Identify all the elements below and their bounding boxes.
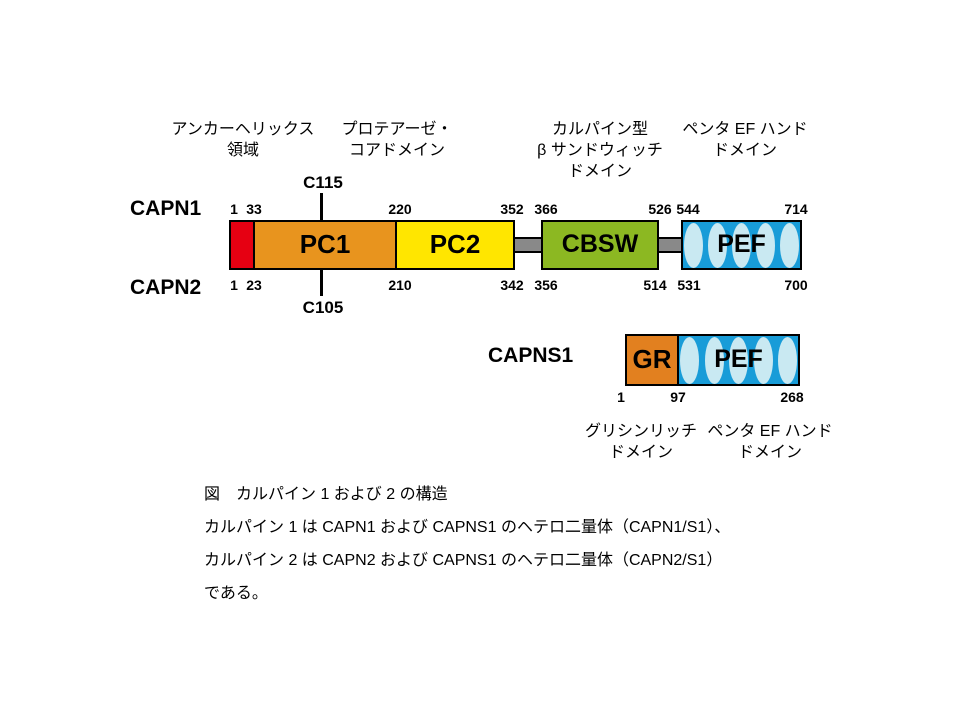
capn2-tick: 700: [784, 277, 807, 293]
annotation-line: ドメイン: [707, 442, 832, 463]
linker-cbsw-pef: [657, 237, 683, 253]
domain-anchor-helix: [229, 220, 255, 270]
capn1-tick: 714: [784, 201, 807, 217]
caption-line: 図 カルパイン 1 および 2 の構造: [204, 478, 730, 511]
caption-line: カルパイン 2 は CAPN2 および CAPNS1 のヘテロ二量体（CAPN2…: [204, 544, 730, 577]
domain-gr-label: GR: [633, 344, 672, 375]
active-site-c115-tick: [320, 193, 323, 220]
capn2-tick: 1: [230, 277, 238, 293]
caption-line: カルパイン 1 は CAPN1 および CAPNS1 のヘテロ二量体（CAPN1…: [204, 511, 730, 544]
domain-cbsw-label: CBSW: [562, 230, 638, 259]
annotation-line: ペンタ EF ハンド: [707, 421, 832, 442]
annotation-line: ペンタ EF ハンド: [682, 119, 807, 140]
capns1-tick: 268: [780, 389, 803, 405]
capns1-name: CAPNS1: [488, 344, 573, 368]
capn1-name: CAPN1: [130, 197, 201, 221]
capn2-tick: 531: [677, 277, 700, 293]
domain-pc1: PC1: [253, 220, 397, 270]
linker-pc2-cbsw: [513, 237, 543, 253]
annotation-glycine-rich: グリシンリッチ ドメイン: [585, 421, 697, 463]
capn1-tick: 526: [648, 201, 671, 217]
domain-pef-small-label: PEF: [714, 345, 763, 374]
annotation-line: カルパイン型: [537, 119, 663, 140]
capn2-tick: 356: [534, 277, 557, 293]
capn2-tick: 210: [388, 277, 411, 293]
capn2-tick: 23: [246, 277, 262, 293]
capns1-tick: 97: [670, 389, 686, 405]
annotation-protease-core: プロテアーゼ・ コアドメイン: [341, 119, 452, 161]
active-site-c105-label: C105: [303, 298, 344, 318]
annotation-line: 領域: [172, 140, 315, 161]
capns1-tick: 1: [617, 389, 625, 405]
active-site-c115-label: C115: [303, 173, 343, 193]
domain-cbsw: CBSW: [541, 220, 659, 270]
annotation-line: グリシンリッチ: [585, 421, 697, 442]
annotation-line: ドメイン: [537, 161, 663, 182]
domain-pc1-label: PC1: [300, 229, 351, 260]
capn1-tick: 352: [500, 201, 523, 217]
domain-pc2: PC2: [395, 220, 515, 270]
ef-hand-motif: [780, 223, 799, 268]
figure-caption: 図 カルパイン 1 および 2 の構造 カルパイン 1 は CAPN1 および …: [204, 478, 730, 610]
domain-pef-large-label: PEF: [717, 230, 766, 259]
annotation-calpain-beta-sandwich: カルパイン型 β サンドウィッチ ドメイン: [537, 119, 663, 182]
capn1-tick: 1: [230, 201, 238, 217]
annotation-line: ドメイン: [585, 442, 697, 463]
annotation-penta-ef-hand-top: ペンタ EF ハンド ドメイン: [682, 119, 807, 161]
active-site-c105-tick: [320, 270, 323, 296]
annotation-line: ドメイン: [682, 140, 807, 161]
domain-pc2-label: PC2: [430, 229, 481, 260]
capn2-tick: 514: [643, 277, 666, 293]
domain-gr: GR: [625, 334, 679, 386]
ef-hand-motif: [778, 337, 797, 384]
domain-pef-large: PEF: [681, 220, 802, 270]
ef-hand-motif: [680, 337, 699, 384]
ef-hand-motif: [684, 223, 703, 268]
annotation-line: アンカーヘリックス: [172, 119, 315, 140]
annotation-anchor-helix: アンカーヘリックス 領域: [172, 119, 315, 161]
capn1-tick: 366: [534, 201, 557, 217]
annotation-line: プロテアーゼ・: [341, 119, 452, 140]
annotation-line: β サンドウィッチ: [537, 140, 663, 161]
domain-pef-small: PEF: [677, 334, 800, 386]
capn1-tick: 33: [246, 201, 262, 217]
annotation-line: コアドメイン: [341, 140, 452, 161]
caption-line: である。: [204, 577, 730, 610]
capn1-tick: 544: [676, 201, 699, 217]
figure-canvas: アンカーヘリックス 領域 プロテアーゼ・ コアドメイン カルパイン型 β サンド…: [0, 0, 960, 720]
capn1-tick: 220: [388, 201, 411, 217]
capn2-tick: 342: [500, 277, 523, 293]
capn2-name: CAPN2: [130, 276, 201, 300]
annotation-penta-ef-hand-bottom: ペンタ EF ハンド ドメイン: [707, 421, 832, 463]
